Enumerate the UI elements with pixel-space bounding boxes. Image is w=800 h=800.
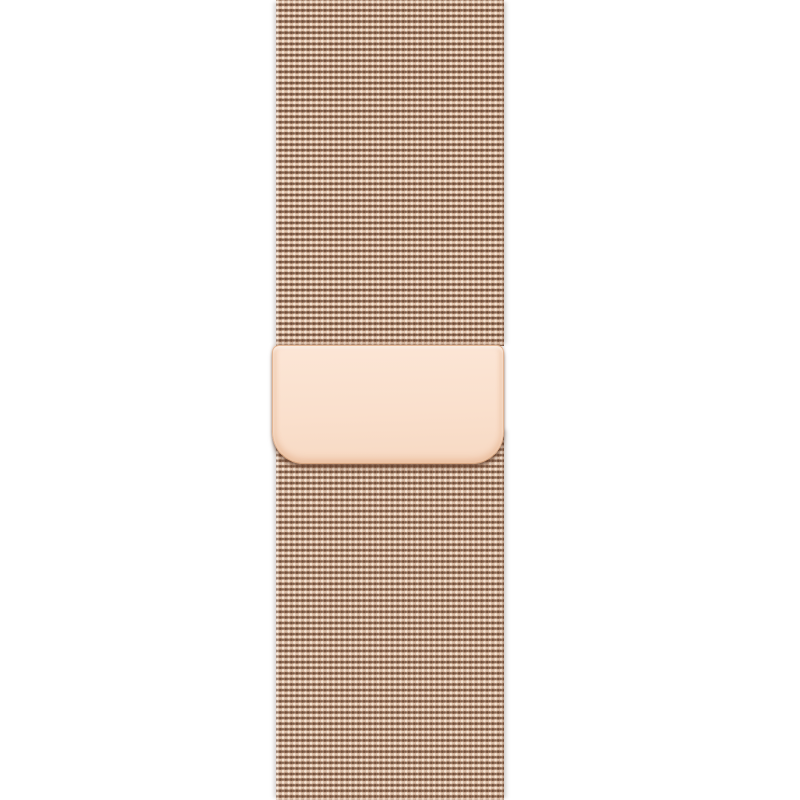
mesh-strap-upper xyxy=(276,0,504,346)
product-photo-canvas xyxy=(0,0,800,800)
magnetic-clasp xyxy=(272,345,504,464)
mesh-strap-lower xyxy=(276,428,504,800)
